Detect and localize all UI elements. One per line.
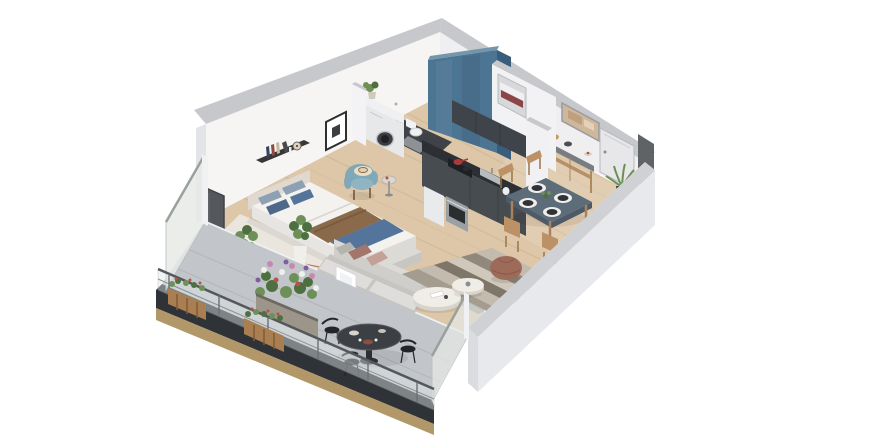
bottle xyxy=(289,147,292,153)
plant-pot xyxy=(293,246,307,264)
door-handle xyxy=(604,151,607,154)
place-setting xyxy=(543,207,561,217)
console-jug xyxy=(578,143,582,151)
plate xyxy=(378,329,386,333)
hat xyxy=(354,166,372,176)
pan xyxy=(463,167,470,171)
place-setting xyxy=(519,198,537,208)
bowl xyxy=(466,282,471,287)
faucet xyxy=(395,103,398,106)
bathroom-partition xyxy=(352,84,366,146)
place-setting xyxy=(554,193,572,203)
bowl xyxy=(363,340,373,345)
se-wall-endcap xyxy=(468,328,478,392)
console-bowl xyxy=(564,142,572,147)
red-pot xyxy=(454,159,463,165)
plate xyxy=(349,331,359,336)
toilet xyxy=(410,128,422,136)
plant-pot xyxy=(368,92,376,99)
kettle xyxy=(503,187,510,195)
cup xyxy=(444,295,448,299)
table-item xyxy=(386,177,389,180)
apartment-3d-floorplan xyxy=(0,0,870,435)
floorplan-render xyxy=(0,0,870,435)
leather-pouf xyxy=(490,256,522,283)
